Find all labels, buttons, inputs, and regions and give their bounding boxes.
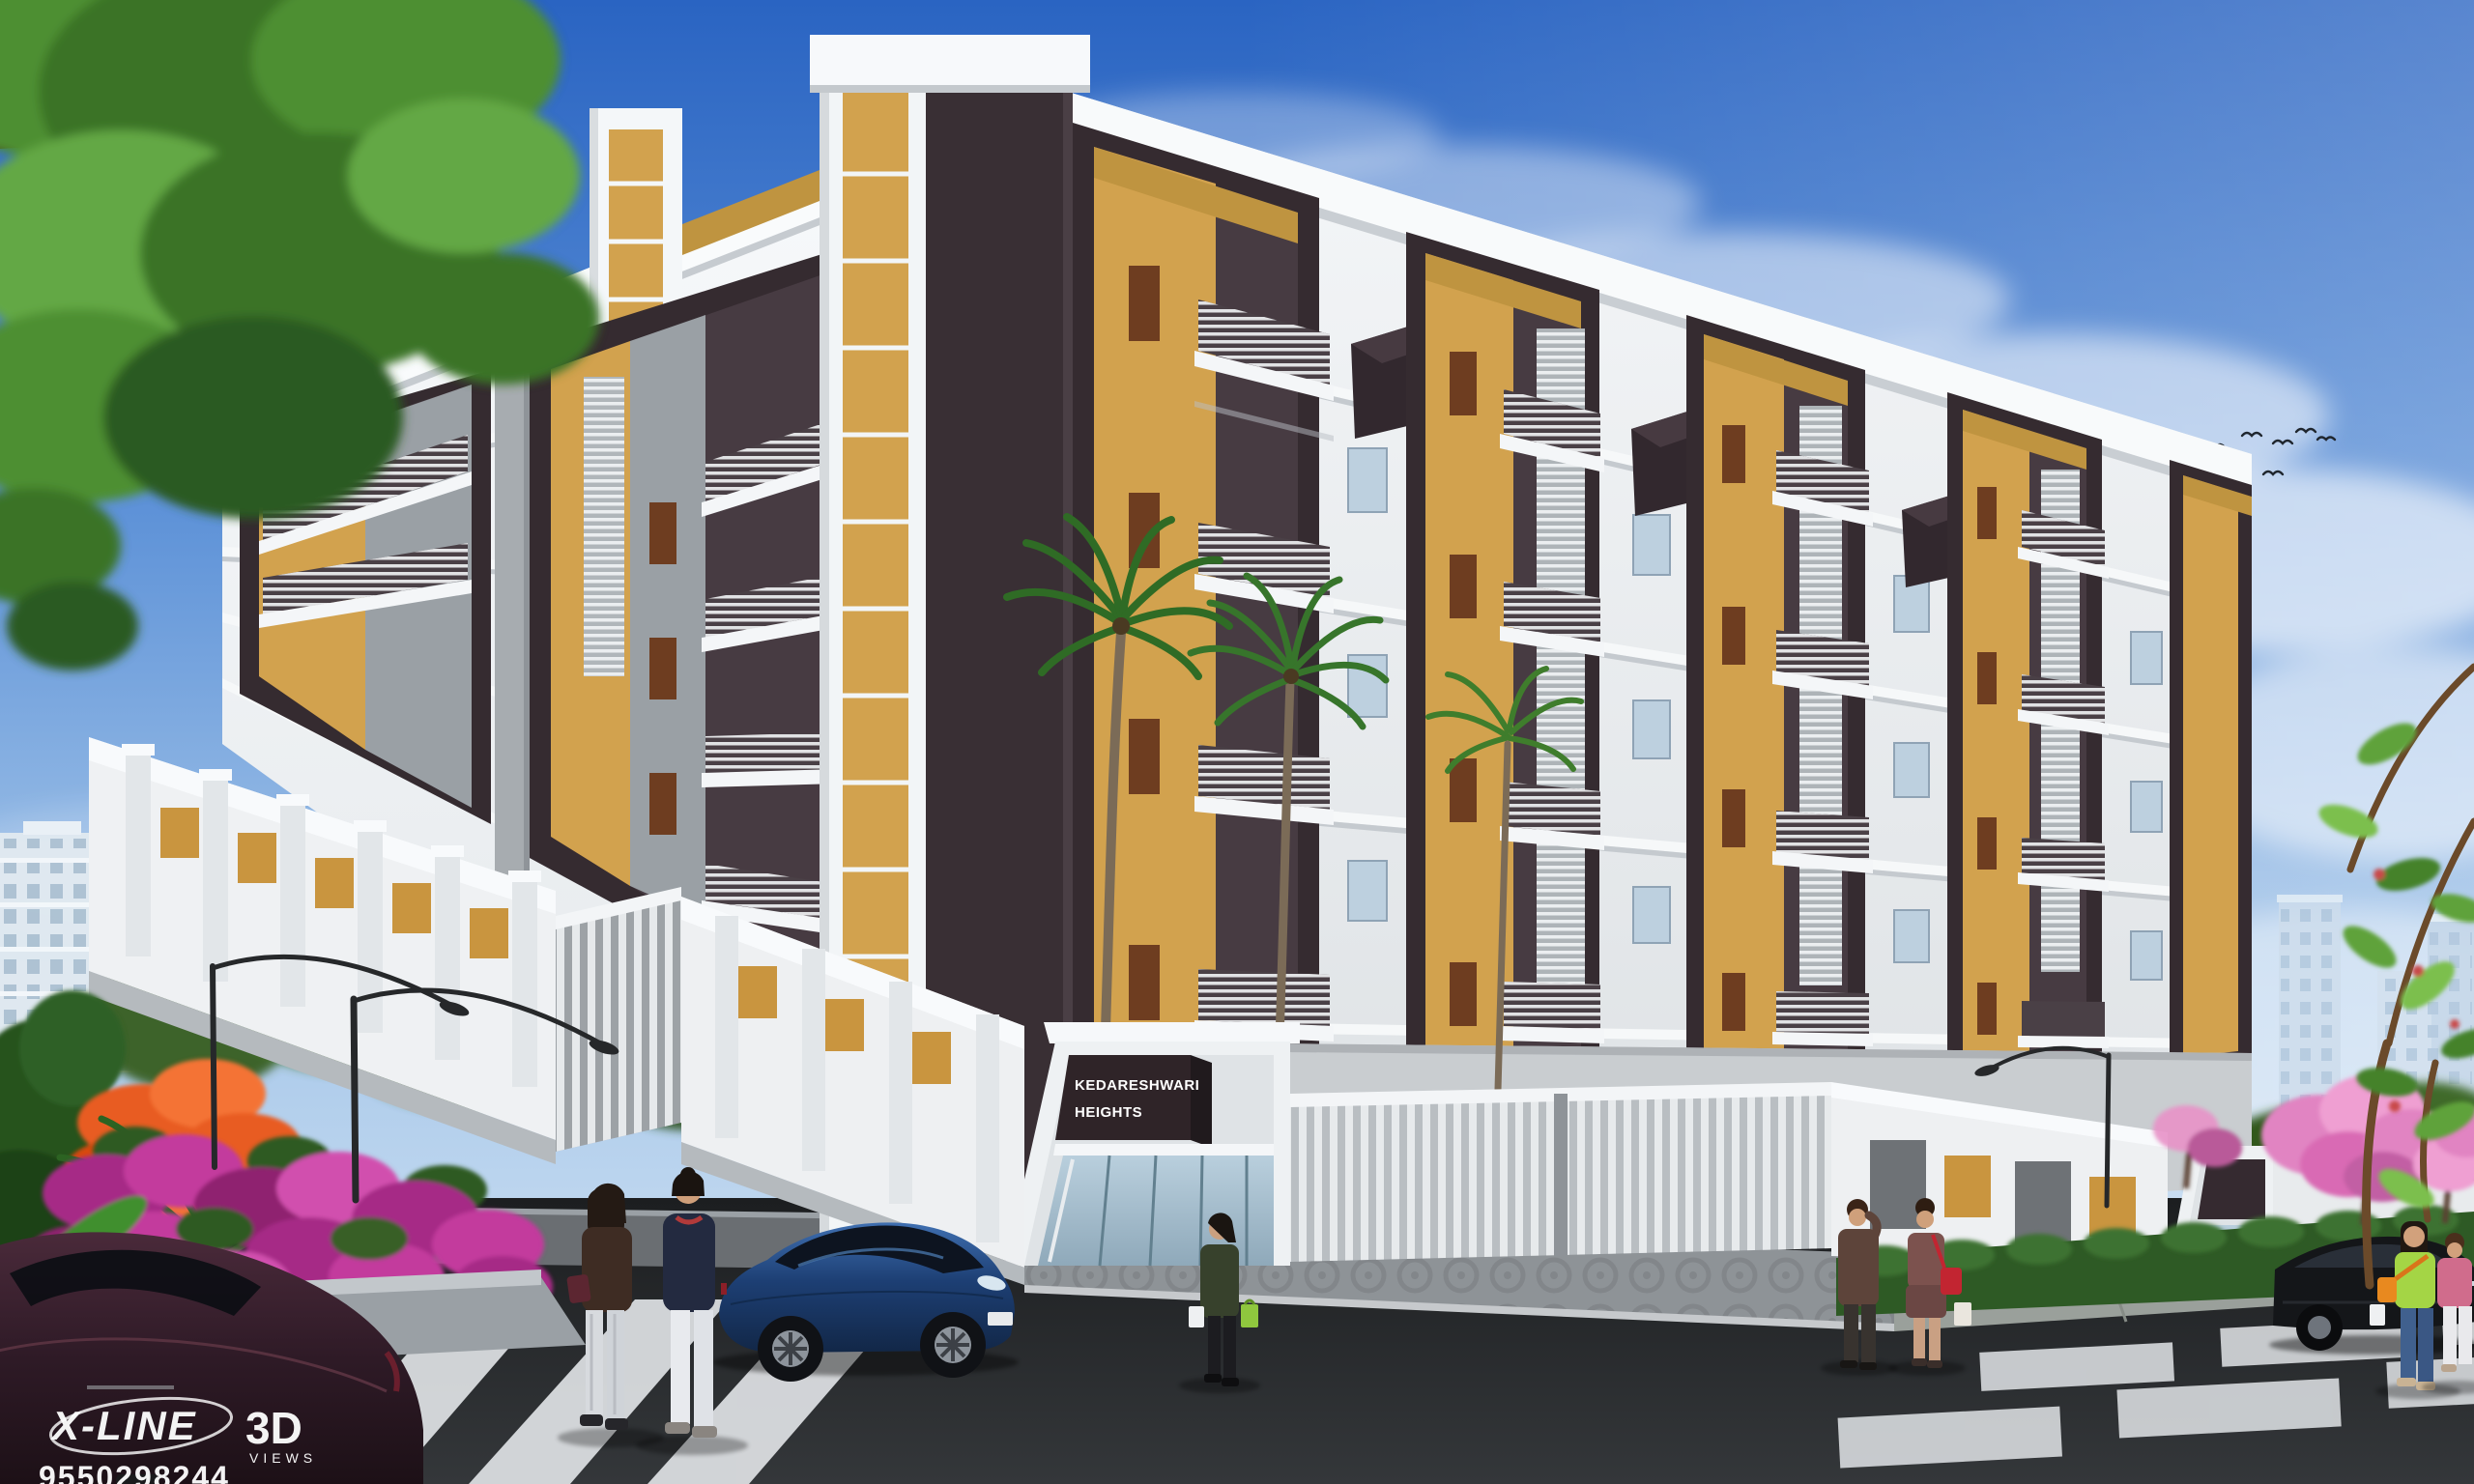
watermark-phone: 9550298244 [39,1460,230,1484]
watermark-brand: X-LINE [50,1403,197,1448]
facade-bay [1406,232,1604,1098]
entrance-sign-line2: HEIGHTS [1075,1104,1142,1121]
facade-bay [1947,392,2109,1082]
entrance-sign: KEDARESHWARI HEIGHTS [1055,1055,1212,1148]
scene-canvas: KEDARESHWARI HEIGHTS [0,0,2474,1484]
entrance-sign-line1: KEDARESHWARI [1075,1077,1199,1094]
facade-bay [2170,460,2252,1070]
side-gate-left [556,887,681,1152]
main-gate [1290,1082,1831,1262]
architectural-render-scene: KEDARESHWARI HEIGHTS [0,0,2474,1484]
facade-bay [1686,315,1873,1094]
watermark-suffix: 3D [245,1403,302,1453]
watermark-tagline: VIEWS [249,1450,317,1466]
secondary-sign [2198,1159,2265,1219]
